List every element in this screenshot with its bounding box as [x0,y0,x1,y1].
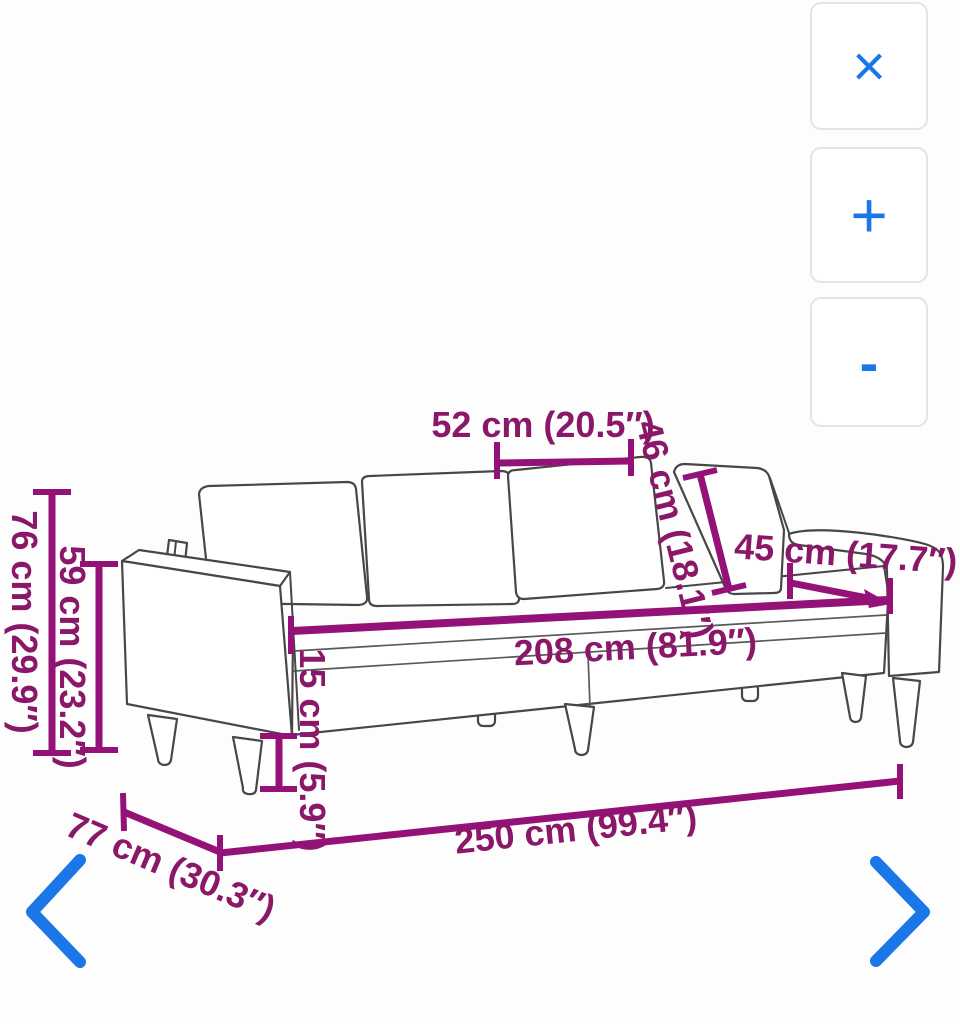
dim-label-seat-cushion-width: 52 cm (20.5″) [431,404,654,445]
zoom-out-button[interactable]: - [810,297,928,427]
dim-label-total-width: 250 cm (99.4″) [453,795,699,861]
dim-arm-height: 59 cm (23.2″) [52,545,118,768]
dim-label-total-depth: 77 cm (30.3″) [60,804,282,929]
front-leg-center [565,704,594,755]
back-cushion-2 [362,471,519,606]
dim-total-depth: 77 cm (30.3″) [60,793,282,929]
dim-label-arm-height: 59 cm (23.2″) [52,545,93,768]
front-leg-right [842,673,866,722]
back-cushion-3 [508,457,664,599]
chevron-left-icon [20,848,92,974]
plus-icon: + [850,178,887,252]
minus-icon: - [860,330,879,395]
left-arm-front-leg [148,715,177,765]
product-image-viewer: 52 cm (20.5″) 46 cm (18.1″) 45 cm (17.7″… [0,0,960,1024]
zoom-in-button[interactable]: + [810,147,928,283]
previous-image-button[interactable] [20,848,92,974]
close-icon: × [852,33,886,100]
next-image-button[interactable] [864,850,936,972]
left-arm-inner-leg [233,737,262,794]
right-arm-leg [893,678,920,747]
chevron-right-icon [864,850,936,972]
dim-label-total-height: 76 cm (29.9″) [4,510,45,733]
dim-label-leg-height: 15 cm (5.9″) [292,648,333,851]
dim-line [497,461,631,463]
left-arm-front [122,561,292,736]
close-button[interactable]: × [810,2,928,130]
sofa-drawing [122,457,943,794]
